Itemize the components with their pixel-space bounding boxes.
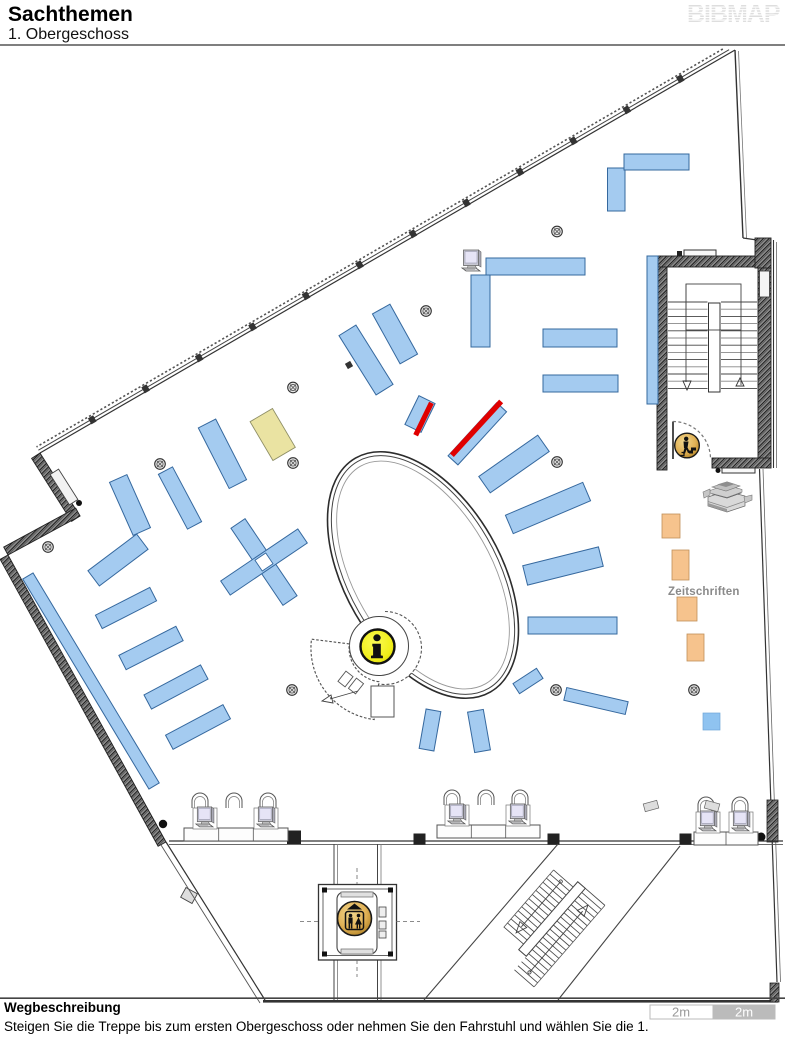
svg-text:1. Obergeschoss: 1. Obergeschoss (8, 26, 129, 43)
svg-text:Zeitschriften: Zeitschriften (668, 586, 740, 598)
svg-text:Wegbeschreibung: Wegbeschreibung (4, 1000, 121, 1015)
svg-text:2m: 2m (672, 1005, 690, 1020)
svg-text:Steigen Sie die Treppe bis zum: Steigen Sie die Treppe bis zum ersten Ob… (4, 1019, 649, 1034)
svg-text:Sachthemen: Sachthemen (8, 3, 133, 26)
svg-text:2m: 2m (735, 1005, 753, 1020)
